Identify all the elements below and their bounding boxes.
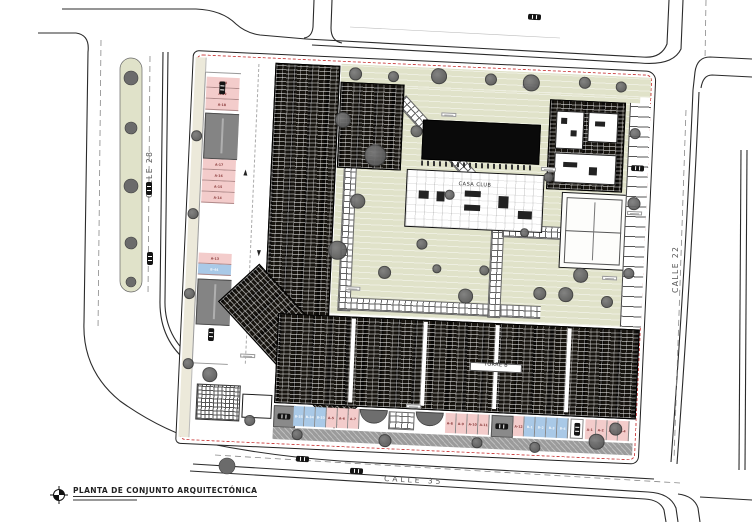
dimension-line [350,27,560,38]
car [350,468,363,475]
level-tag [406,404,421,409]
carport [203,113,240,161]
furniture [419,190,429,198]
level-tag [523,84,538,89]
stall-group: A-1A-2A-3A-4 [585,419,630,441]
casa-club-label: CASA CLUB [459,181,492,188]
parking-stall: A-7 [348,408,360,428]
parking-stall: B-44 [198,263,231,275]
car [528,14,541,21]
amenity-room [555,111,585,150]
level-tag [541,167,556,172]
ramp [491,415,514,438]
service-structure [195,384,241,422]
car [631,165,644,172]
stall-group: A-13B-44 [198,252,232,275]
building-apartments-north [337,82,405,171]
stall-group: A-8A-9A-10A-11 [445,413,490,435]
furniture [436,191,444,201]
guard-house [241,394,272,419]
north-compass-icon [50,486,68,504]
scale-note [73,499,137,501]
street-label-right: CALLE 22 [671,246,680,293]
parking-stall: B-4 [557,418,569,438]
car [296,456,309,463]
planter-semicircle [415,411,444,426]
traffic-arrow-icon [243,169,247,175]
parking-stall: A-11 [478,414,490,434]
title-text-wrap: PLANTA DE CONJUNTO ARQUITECTÓNICA [73,486,257,501]
building-amenities-east [546,99,626,192]
title-block: PLANTA DE CONJUNTO ARQUITECTÓNICA [50,486,257,504]
occupied-stall [570,419,584,440]
amenity-room [553,153,616,186]
street-label-bottom: CALLE 35 [384,474,444,486]
pool [421,120,541,165]
level-tag [627,211,642,216]
building-torre-b [274,313,640,419]
car [208,328,215,341]
furniture [465,190,481,197]
sports-court [558,192,627,271]
furniture [464,204,480,211]
drawing-title: PLANTA DE CONJUNTO ARQUITECTÓNICA [73,486,257,497]
level-tag [240,353,255,358]
car [147,252,153,265]
street-median [120,58,142,292]
stall-group: A-17A-16A-15A-14 [201,159,236,204]
walkway-plaza [389,412,414,429]
furniture [518,211,532,220]
parking-stall: A-14 [201,192,234,204]
planter-semicircle [359,409,388,424]
casa-club-building: CASA CLUB [404,169,544,233]
car [219,81,226,94]
stall-group: B-35B-34B-33A-5A-6A-7 [293,406,360,429]
level-tag [345,286,360,291]
parking-stall: A-4 [618,421,630,441]
site-plan-sheet: CALLE 28 CALLE 22 CALLE 35 A-20A-19A-18 … [0,0,752,522]
traffic-arrow-icon [257,250,261,256]
tree [201,366,217,382]
parcel: A-20A-19A-18 A-17A-16A-15A-14 A-13B-44 [175,50,656,465]
stall-group: A-12B-1B-2B-3B-4 [513,416,569,438]
furniture [498,196,509,208]
parking-stall: A-18 [205,99,238,111]
torre-b-label: TORRE B [484,362,508,369]
level-tag [441,112,456,117]
amenity-room [587,112,618,143]
car [146,182,152,195]
level-tag [602,276,617,281]
